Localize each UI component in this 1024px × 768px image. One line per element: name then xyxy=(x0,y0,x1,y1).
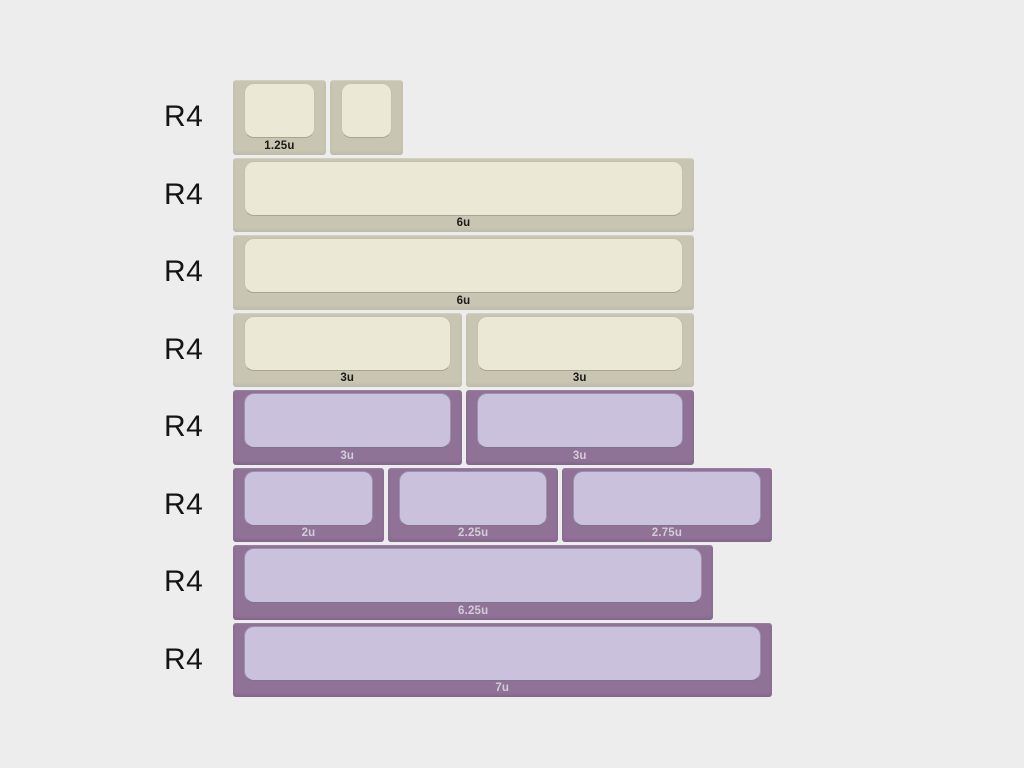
keycap-top-surface xyxy=(244,316,451,371)
kit-row-2: R46u xyxy=(0,158,1024,233)
keycap-size-label: 2.25u xyxy=(388,526,558,540)
keycap-3u: 3u xyxy=(233,390,462,465)
kit-row-4: R43u3u xyxy=(0,313,1024,388)
kit-row-8: R47u xyxy=(0,623,1024,698)
kit-row-1: R41.25u xyxy=(0,80,1024,155)
keycap-top-surface xyxy=(399,471,547,526)
row-profile-label: R4 xyxy=(164,100,203,134)
keycap-top-surface xyxy=(573,471,760,526)
keycap-6-25u: 6.25u xyxy=(233,545,713,620)
keycap-kit-render: R41.25uR46uR46uR43u3uR43u3uR42u2.25u2.75… xyxy=(0,0,1024,768)
keycap-size-label: 6u xyxy=(233,216,694,230)
kit-row-3: R46u xyxy=(0,235,1024,310)
keycap-top-surface xyxy=(341,83,393,138)
row-profile-label: R4 xyxy=(164,488,203,522)
keycap-size-label: 3u xyxy=(466,449,695,463)
keycap-size-label: 7u xyxy=(233,681,772,695)
keycap-1-25u: 1.25u xyxy=(233,80,326,155)
keycap-size-label: 6u xyxy=(233,294,694,308)
keycap-top-surface xyxy=(244,626,761,681)
keycap-6u: 6u xyxy=(233,235,694,310)
keycap-2-75u: 2.75u xyxy=(562,468,771,543)
keycap-7u: 7u xyxy=(233,623,772,698)
keycap-top-surface xyxy=(244,548,702,603)
keycap-size-label: 6.25u xyxy=(233,604,713,618)
row-profile-label: R4 xyxy=(164,643,203,677)
row-profile-label: R4 xyxy=(164,255,203,289)
keycap-top-surface xyxy=(244,471,373,526)
keycap-3u: 3u xyxy=(233,313,462,388)
keycap-1u xyxy=(330,80,404,155)
row-profile-label: R4 xyxy=(164,565,203,599)
row-profile-label: R4 xyxy=(164,178,203,212)
keycap-size-label: 2.75u xyxy=(562,526,771,540)
keycap-size-label: 3u xyxy=(233,371,462,385)
keycap-top-surface xyxy=(477,316,684,371)
keycap-3u: 3u xyxy=(466,313,695,388)
keycap-top-surface xyxy=(244,393,451,448)
keycap-2-25u: 2.25u xyxy=(388,468,558,543)
kit-row-5: R43u3u xyxy=(0,390,1024,465)
kit-row-6: R42u2.25u2.75u xyxy=(0,468,1024,543)
keycap-top-surface xyxy=(244,161,683,216)
keycap-size-label: 1.25u xyxy=(233,139,326,153)
keycap-size-label: 2u xyxy=(233,526,384,540)
keycap-3u: 3u xyxy=(466,390,695,465)
row-profile-label: R4 xyxy=(164,333,203,367)
keycap-2u: 2u xyxy=(233,468,384,543)
keycap-size-label: 3u xyxy=(466,371,695,385)
row-profile-label: R4 xyxy=(164,410,203,444)
kit-row-7: R46.25u xyxy=(0,545,1024,620)
keycap-top-surface xyxy=(477,393,684,448)
keycap-top-surface xyxy=(244,83,315,138)
keycap-6u: 6u xyxy=(233,158,694,233)
keycap-size-label: 3u xyxy=(233,449,462,463)
keycap-top-surface xyxy=(244,238,683,293)
